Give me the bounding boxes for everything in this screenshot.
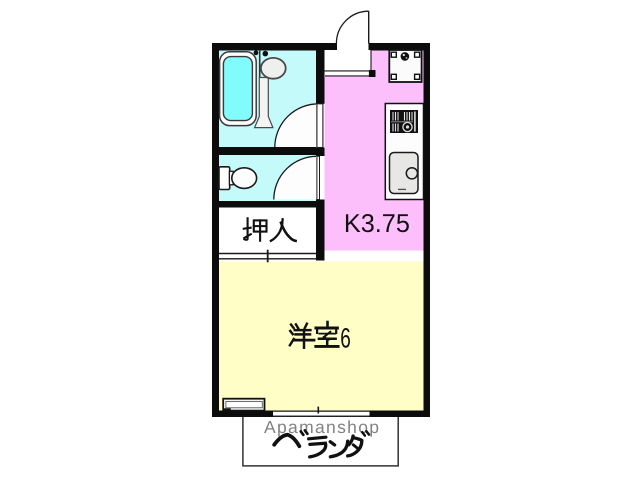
svg-text:K3.75: K3.75 <box>344 210 410 238</box>
svg-text:6: 6 <box>340 323 351 354</box>
svg-text:Apamanshop: Apamanshop <box>264 417 379 437</box>
